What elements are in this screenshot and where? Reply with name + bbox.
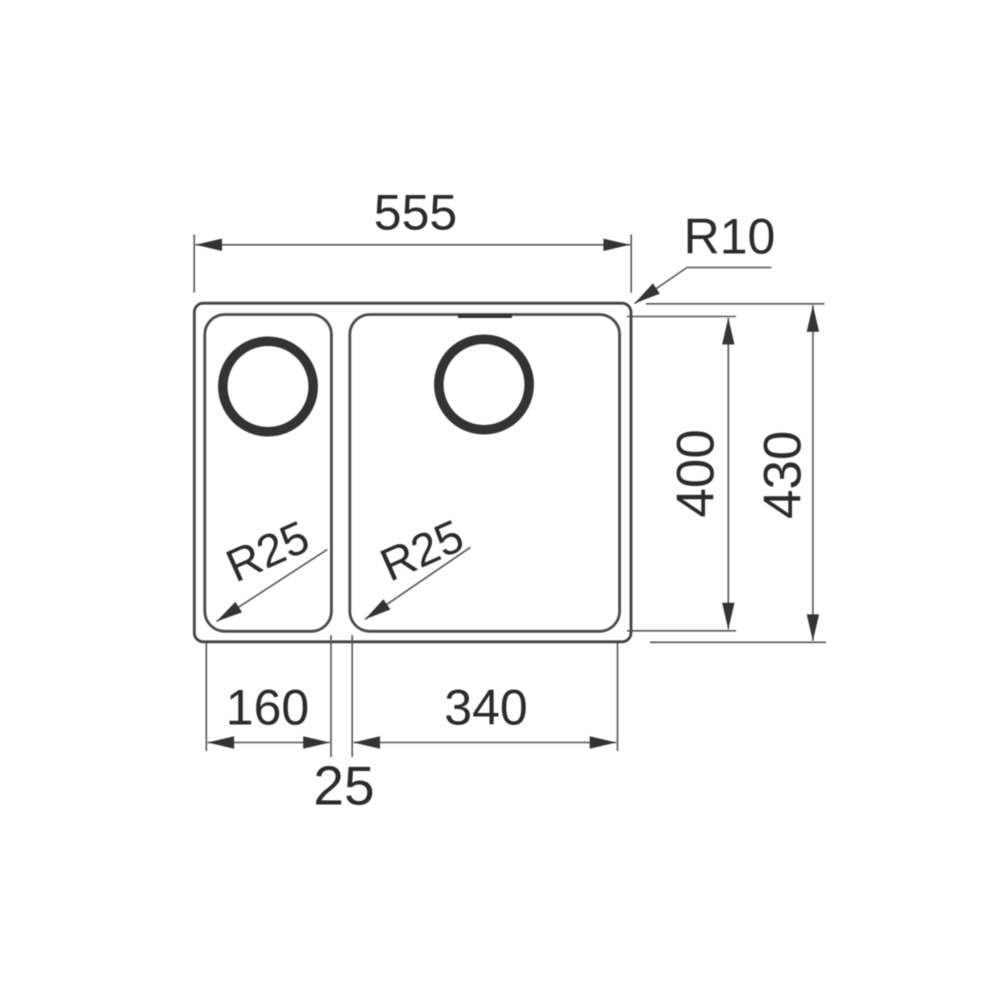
- svg-text:R10: R10: [684, 209, 776, 265]
- svg-text:R25: R25: [218, 510, 316, 592]
- svg-text:160: 160: [226, 680, 309, 736]
- svg-text:400: 400: [667, 429, 726, 517]
- svg-text:340: 340: [444, 680, 527, 736]
- svg-text:25: 25: [313, 755, 374, 817]
- svg-text:430: 430: [754, 431, 813, 519]
- svg-text:R25: R25: [373, 509, 471, 591]
- svg-text:555: 555: [374, 185, 457, 241]
